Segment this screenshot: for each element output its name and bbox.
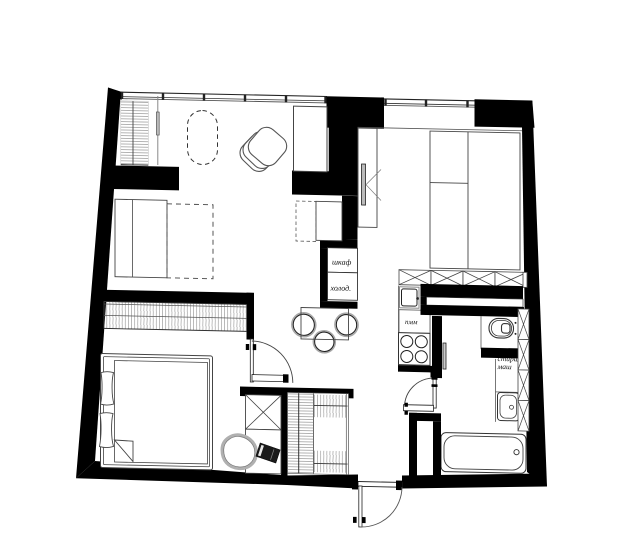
svg-text:пмм: пмм	[405, 318, 418, 326]
svg-text:шкаф: шкаф	[332, 257, 352, 266]
svg-text:маш: маш	[497, 362, 513, 371]
svg-text:холод.: холод.	[330, 283, 352, 292]
